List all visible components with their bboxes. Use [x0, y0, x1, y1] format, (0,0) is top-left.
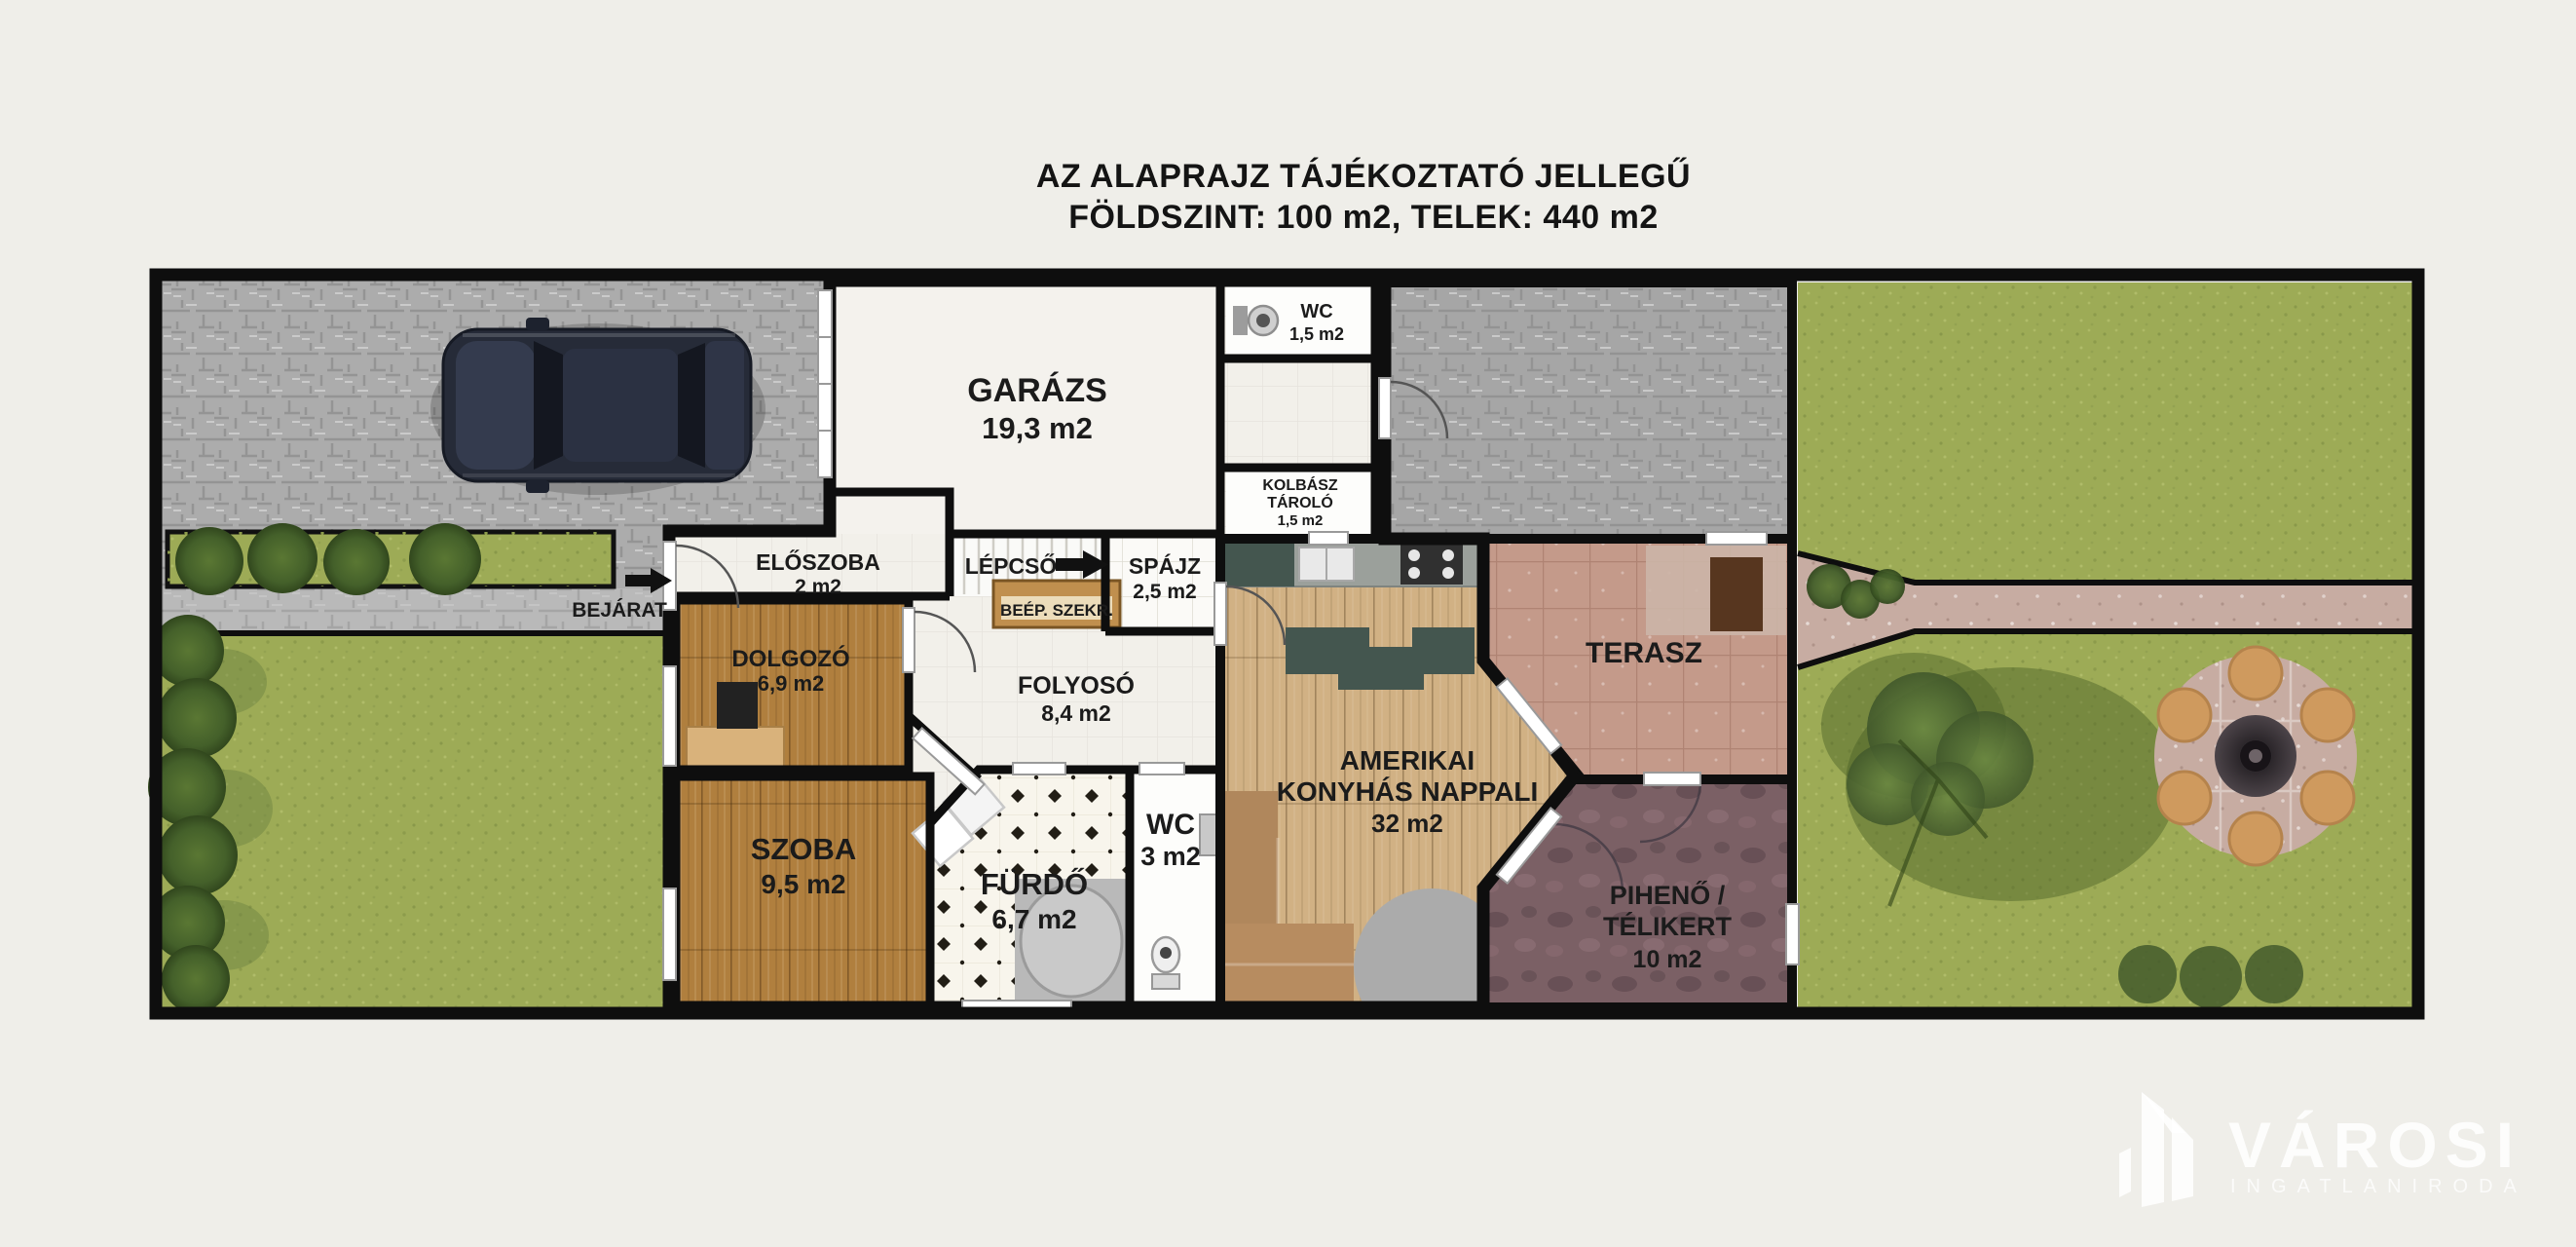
patio-seat [2158, 772, 2211, 824]
label-folyoso: FOLYOSÓ [1018, 670, 1135, 699]
bush-icon [247, 523, 317, 593]
car-windshield [534, 341, 563, 470]
window [663, 888, 676, 980]
room-wc-also [1130, 770, 1220, 1007]
door [1214, 583, 1226, 645]
label-kolbasz-1: KOLBÁSZ [1262, 475, 1338, 494]
patio-seat [2158, 689, 2211, 741]
label-beep-szekr: BEÉP. SZEKR. [1000, 601, 1113, 620]
doormat [1710, 557, 1763, 631]
bottom-bushes [2118, 945, 2303, 1008]
label-bejarat: BEJÁRAT [572, 599, 667, 622]
label-folyoso-area: 8,4 m2 [1041, 700, 1111, 726]
label-dolgozo-area: 6,9 m2 [758, 671, 825, 696]
watermark-brand: VÁROSI [2228, 1109, 2521, 1181]
window [1786, 904, 1799, 964]
patio-seat [2229, 647, 2282, 699]
door [1139, 763, 1184, 775]
patio-seat [2229, 812, 2282, 865]
bush-icon [1870, 569, 1905, 604]
label-furdo: FÜRDŐ [981, 866, 1088, 901]
bush-icon [175, 527, 243, 595]
label-furdo-area: 6,7 m2 [991, 904, 1076, 934]
label-lepcso: LÉPCSŐ [965, 552, 1058, 579]
patio-seat [2301, 689, 2354, 741]
label-terasz: TERASZ [1586, 637, 1702, 669]
label-piheno-area: 10 m2 [1633, 946, 1702, 973]
label-nappali-2: KONYHÁS NAPPALI [1277, 776, 1539, 807]
desk-chair [717, 682, 758, 729]
toilet-tank [1233, 306, 1248, 335]
floorplan-image: AZ ALAPRAJZ TÁJÉKOZTATÓ JELLEGŰ FÖLDSZIN… [0, 0, 2576, 1247]
watermark-tagline: INGATLANIRODA [2230, 1176, 2527, 1197]
door [1644, 773, 1700, 785]
desk [687, 727, 784, 768]
window [663, 666, 676, 766]
door [1013, 763, 1065, 775]
label-piheno-2: TÉLIKERT [1603, 911, 1733, 941]
label-spajz: SPÁJZ [1129, 552, 1201, 579]
label-spajz-area: 2,5 m2 [1133, 581, 1196, 603]
kitchen-cabinet [1224, 542, 1294, 586]
right-garden [1798, 283, 2412, 1008]
rear-courtyard [1385, 283, 1792, 539]
window [1309, 532, 1348, 545]
label-wc-also: WC [1146, 809, 1195, 841]
label-wc-also-area: 3 m2 [1140, 842, 1201, 871]
label-eloszoba: ELŐSZOBA [756, 548, 880, 575]
label-dolgozo: DOLGOZÓ [731, 645, 849, 672]
label-garazs: GARÁZS [967, 372, 1107, 409]
label-nappali-1: AMERIKAI [1340, 745, 1475, 775]
label-wc-felso: WC [1300, 301, 1332, 322]
label-kolbasz-2: TÁROLÓ [1267, 493, 1333, 511]
sofa-teal [1412, 627, 1475, 674]
label-szoba: SZOBA [751, 832, 857, 866]
grass-strip [168, 523, 614, 595]
plan-title-line1: AZ ALAPRAJZ TÁJÉKOZTATÓ JELLEGŰ [1036, 158, 1691, 195]
bush-icon [409, 523, 481, 595]
bush-icon [323, 529, 390, 595]
stove [1400, 544, 1463, 585]
label-eloszoba-area: 2 m2 [795, 576, 841, 598]
floorplan-page: AZ ALAPRAJZ TÁJÉKOZTATÓ JELLEGŰ FÖLDSZIN… [0, 0, 2576, 1247]
bathtub [1021, 886, 1122, 997]
door [1379, 378, 1391, 438]
sofa-teal [1338, 647, 1424, 690]
label-piheno-1: PIHENŐ / [1610, 880, 1726, 910]
car-mirror [526, 318, 549, 330]
label-szoba-area: 9,5 m2 [761, 869, 845, 899]
plan-title-line2: FÖLDSZINT: 100 m2, TELEK: 440 m2 [1068, 199, 1659, 236]
patio-seat [2301, 772, 2354, 824]
terrace-door [1706, 532, 1767, 545]
door [903, 608, 915, 672]
car-mirror [526, 480, 549, 493]
car [430, 318, 765, 495]
label-garazs-area: 19,3 m2 [982, 411, 1093, 445]
label-wc-felso-area: 1,5 m2 [1289, 324, 1344, 344]
label-nappali-area: 32 m2 [1371, 809, 1443, 838]
sofa-brown [1225, 791, 1278, 935]
label-kolbasz-area: 1,5 m2 [1278, 512, 1324, 529]
toilet-tank [1152, 974, 1179, 989]
